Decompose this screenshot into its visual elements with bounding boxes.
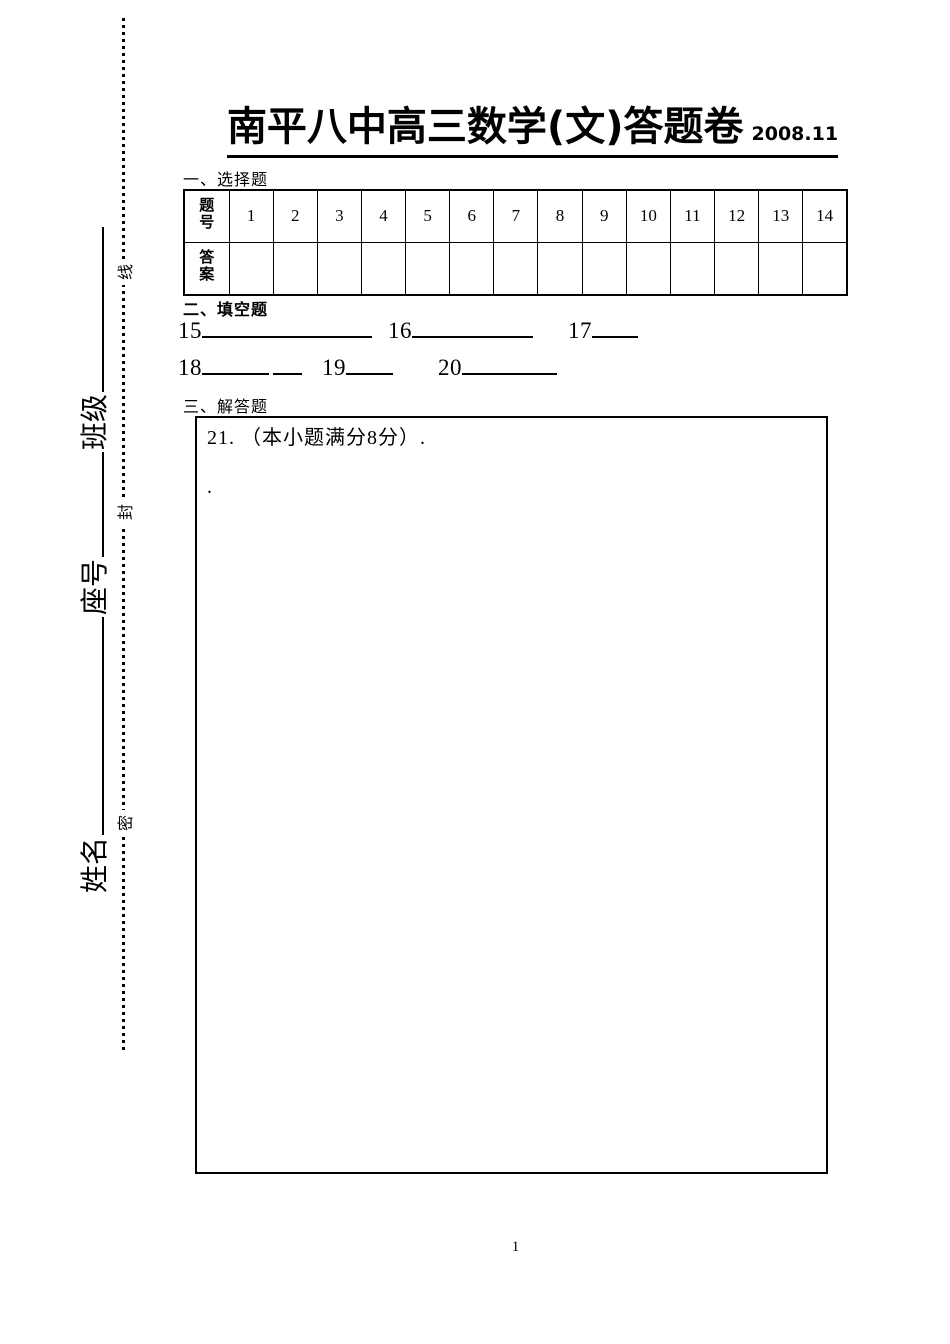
question-number-cell: 11 [670, 190, 714, 242]
answer-cell[interactable] [538, 242, 582, 295]
question-number-cell: 3 [317, 190, 361, 242]
blank-field-20[interactable] [462, 353, 557, 375]
question-number-cell: 12 [715, 190, 759, 242]
blank-item-20: 20 [438, 353, 557, 381]
answer-cell[interactable] [273, 242, 317, 295]
page-number: 1 [183, 1239, 848, 1256]
answer-cell[interactable] [406, 242, 450, 295]
blank-number-18: 18 [178, 355, 202, 380]
stray-dot: . [207, 476, 212, 499]
solution-section-heading: 三、解答题 [183, 393, 268, 417]
question-number-cell: 9 [582, 190, 626, 242]
blank-field-18b[interactable] [273, 353, 302, 375]
blank-field-17[interactable] [592, 316, 638, 338]
question-number-header-text: 题号 [196, 197, 217, 231]
answer-cell[interactable] [759, 242, 803, 295]
blank-field-16[interactable] [412, 316, 533, 338]
answer-cell[interactable] [494, 242, 538, 295]
blank-item-18: 18 [178, 353, 302, 381]
question-21-label: 21. （本小题满分8分）. [207, 421, 426, 450]
seat-field[interactable] [78, 452, 104, 557]
blank-item-16: 16 [388, 316, 533, 344]
title-underline: 南平八中高三数学(文)答题卷2008.11 [227, 94, 838, 158]
choice-answer-table: 题号 1234567891011121314 答案 [183, 189, 848, 296]
question-number-cell: 7 [494, 190, 538, 242]
answer-cell[interactable] [582, 242, 626, 295]
blank-number-19: 19 [322, 355, 346, 380]
seal-char-mi: 密 [111, 810, 137, 836]
solution-answer-box[interactable]: 21. （本小题满分8分）. . [195, 416, 828, 1174]
seal-char-feng: 封 [111, 499, 137, 525]
blank-field-15[interactable] [202, 316, 372, 338]
blank-number-17: 17 [568, 318, 592, 343]
blank-number-15: 15 [178, 318, 202, 343]
question-number-cell: 4 [361, 190, 405, 242]
blank-number-20: 20 [438, 355, 462, 380]
answer-cell[interactable] [715, 242, 759, 295]
question-number-cell: 8 [538, 190, 582, 242]
student-info-rotated: 姓名座号班级 [73, 173, 109, 893]
answer-sheet-page: 线 封 密 姓名座号班级 南平八中高三数学(文)答题卷2008.11 一、选择题… [0, 0, 950, 1344]
seal-char-line: 线 [111, 259, 137, 285]
page-title: 南平八中高三数学(文)答题卷 [227, 104, 744, 150]
answer-cell[interactable] [229, 242, 273, 295]
class-field[interactable] [78, 227, 104, 392]
seat-label: 座号 [80, 559, 111, 615]
answer-cell[interactable] [670, 242, 714, 295]
answer-cell[interactable] [626, 242, 670, 295]
seal-dotted-line [122, 18, 125, 1053]
question-number-cell: 10 [626, 190, 670, 242]
choice-section-heading: 一、选择题 [183, 166, 268, 190]
title-block: 南平八中高三数学(文)答题卷2008.11 [200, 94, 865, 158]
title-date: 2008.11 [752, 123, 839, 145]
answer-header: 答案 [184, 242, 229, 295]
blank-item-17: 17 [568, 316, 638, 344]
answer-cell[interactable] [450, 242, 494, 295]
answer-cell[interactable] [803, 242, 847, 295]
blank-item-15: 15 [178, 316, 372, 344]
question-number-cell: 5 [406, 190, 450, 242]
answer-cell[interactable] [361, 242, 405, 295]
question-number-cell: 6 [450, 190, 494, 242]
name-label: 姓名 [80, 837, 111, 893]
question-number-cell: 2 [273, 190, 317, 242]
answer-header-text: 答案 [196, 249, 217, 283]
blank-field-19[interactable] [346, 353, 393, 375]
blank-field-18[interactable] [202, 353, 269, 375]
class-label: 班级 [80, 394, 111, 450]
question-number-cell: 13 [759, 190, 803, 242]
answer-row: 答案 [184, 242, 847, 295]
blank-item-19: 19 [322, 353, 393, 381]
question-number-row: 题号 1234567891011121314 [184, 190, 847, 242]
answer-cell[interactable] [317, 242, 361, 295]
question-number-cell: 14 [803, 190, 847, 242]
question-number-cell: 1 [229, 190, 273, 242]
blank-number-16: 16 [388, 318, 412, 343]
name-field[interactable] [78, 617, 104, 835]
question-number-header: 题号 [184, 190, 229, 242]
